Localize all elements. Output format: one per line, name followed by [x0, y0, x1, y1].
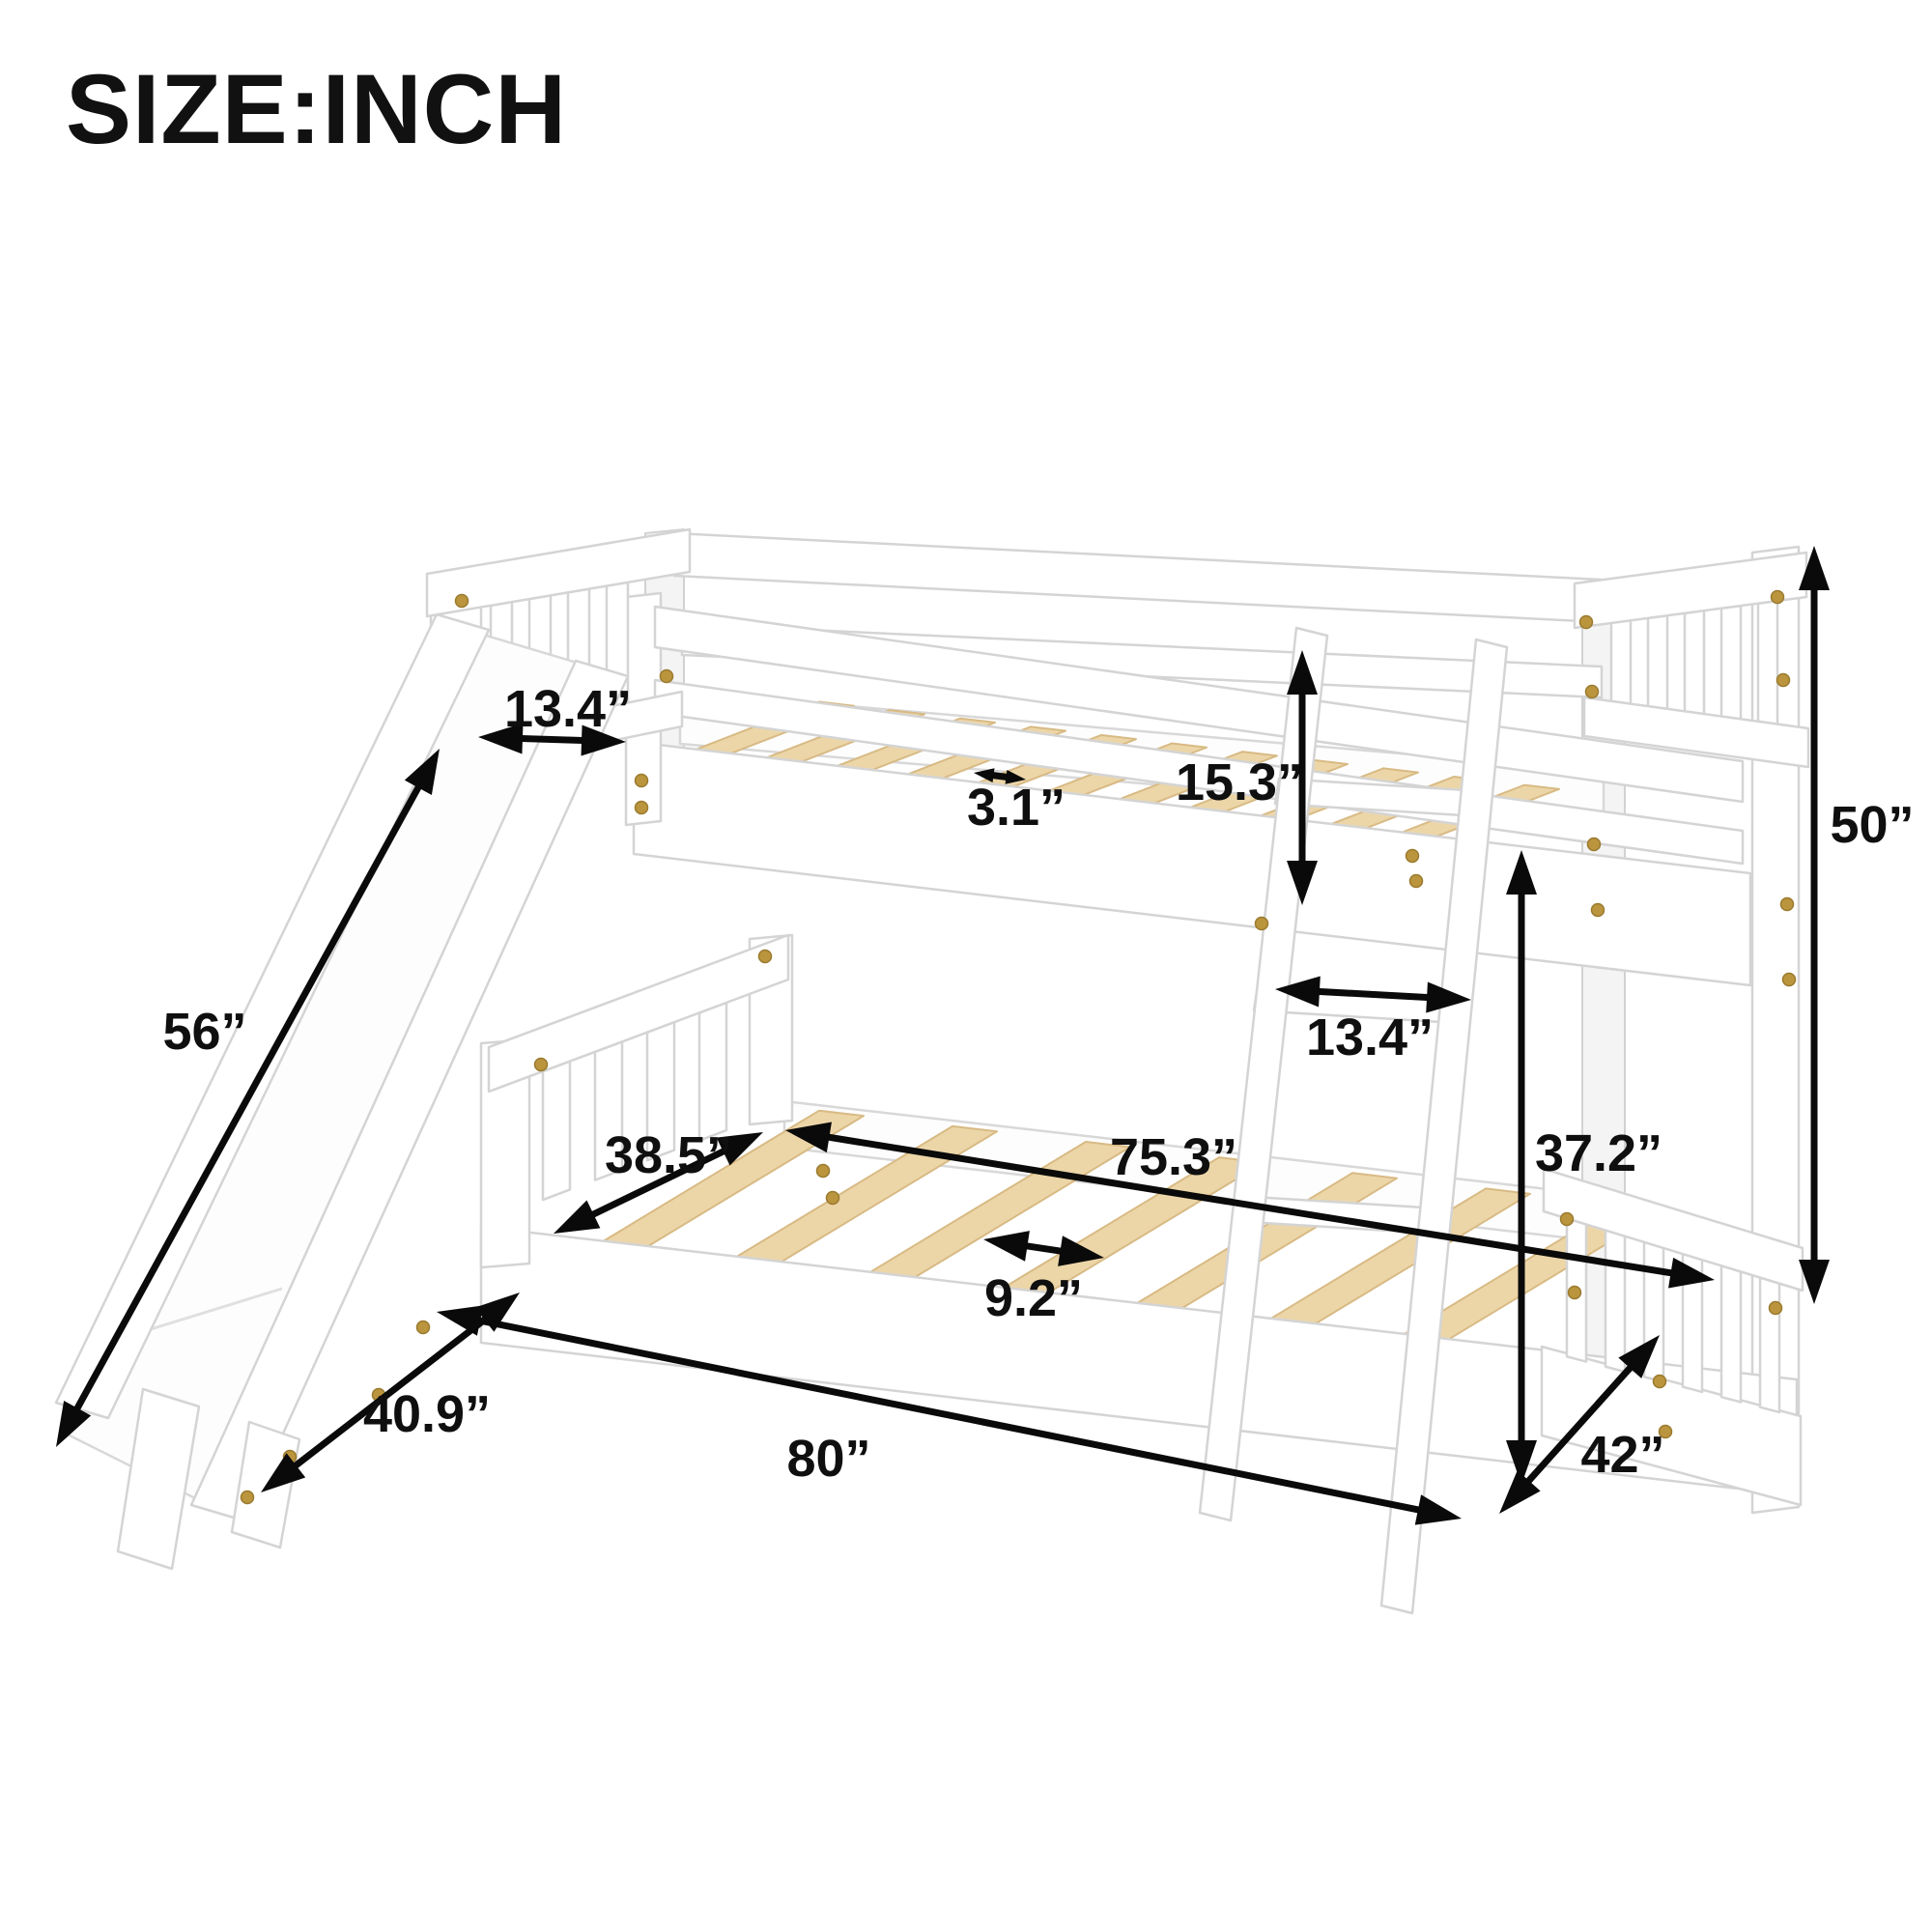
label-upper-guardrail-height: 15.3”: [1176, 753, 1303, 811]
lower-left-guard-slat: [543, 1062, 570, 1200]
label-slide-length: 56”: [162, 1003, 246, 1061]
lower-left-guard-top-rail: [489, 935, 788, 1092]
label-upper-slat-spacing: 3.1”: [967, 779, 1065, 837]
lower-right-guard-slat: [1721, 1265, 1741, 1402]
page-title: SIZE:INCH: [66, 54, 567, 164]
footboard-slat: [1721, 606, 1741, 719]
screw-icon: [1569, 1287, 1581, 1299]
screw-icon: [1561, 1213, 1574, 1226]
screw-icon: [827, 1192, 839, 1205]
lower-left-guard-slat: [699, 1003, 726, 1141]
label-overall-depth: 42”: [1580, 1426, 1664, 1484]
arrowhead-icon: [437, 1305, 483, 1335]
screw-icon: [1592, 904, 1605, 917]
screw-icon: [1777, 674, 1790, 687]
screw-icon: [1586, 686, 1599, 698]
arrowhead-icon: [983, 1231, 1030, 1262]
screw-icon: [817, 1165, 830, 1178]
bunk-bed-dimension-diagram: 13.4” 3.1” 15.3” 50” 56” 38.5” 75.3” 13.…: [0, 0, 1932, 1932]
label-ladder-width: 13.4”: [1306, 1009, 1434, 1066]
screw-icon: [1781, 898, 1794, 911]
screw-icon: [661, 670, 673, 683]
label-upper-bed-inner-length: 75.3”: [1110, 1128, 1237, 1186]
screw-icon: [1580, 616, 1593, 629]
screw-icon: [636, 802, 648, 814]
arrowhead-icon: [1415, 1494, 1462, 1524]
upper-back-guard-top-rail: [674, 533, 1602, 622]
dimension-arrow-lower-slat-spacing: [983, 1231, 1104, 1266]
screw-icon: [1783, 974, 1796, 986]
product-dimension-page: 13.4” 3.1” 15.3” 50” 56” 38.5” 75.3” 13.…: [0, 0, 1932, 1932]
footboard-slat: [1758, 601, 1777, 724]
label-lower-section-height: 37.2”: [1535, 1124, 1662, 1182]
arrowhead-icon: [554, 1201, 600, 1234]
label-overall-length: 80”: [786, 1430, 870, 1488]
screw-icon: [1406, 850, 1419, 863]
screw-icon: [241, 1492, 254, 1504]
screw-icon: [1654, 1376, 1666, 1388]
label-lower-bed-inner-width: 38.5”: [605, 1126, 732, 1184]
label-lower-slat-spacing: 9.2”: [984, 1269, 1083, 1327]
label-slide-footprint-depth: 40.9”: [363, 1385, 491, 1443]
screw-icon: [417, 1321, 430, 1334]
screw-icon: [1256, 918, 1268, 930]
lower-right-guard-slat: [1605, 1231, 1625, 1372]
screw-icon: [1770, 1302, 1782, 1315]
footboard-slat: [1648, 615, 1667, 709]
screw-icon: [1410, 875, 1423, 888]
screw-icon: [1588, 838, 1601, 851]
screw-icon: [535, 1059, 548, 1071]
screw-icon: [456, 595, 469, 608]
screw-icon: [1772, 591, 1784, 604]
screw-icon: [636, 775, 648, 787]
footboard-slat: [1685, 611, 1704, 714]
footboard-slat: [1611, 620, 1631, 703]
lower-right-guard-slat: [1760, 1278, 1779, 1412]
screw-icon: [759, 951, 772, 963]
label-slide-entry-width: 13.4”: [504, 680, 632, 738]
dimension-arrow-overall-height: [1799, 546, 1830, 1304]
label-overall-height: 50”: [1830, 796, 1914, 854]
